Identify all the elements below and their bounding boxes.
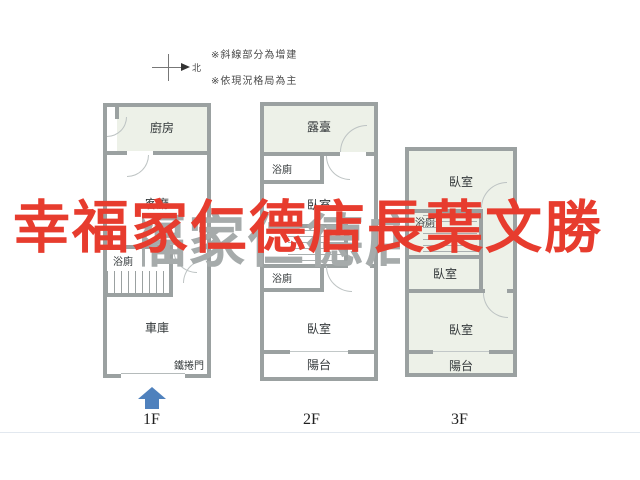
entry-arrow-icon: [138, 387, 166, 409]
floor-plan-image: 北 ※斜線部分為增建 ※依現況格局為主 廚房 客廳 浴廁 車庫 鐵捲門 露臺 浴…: [0, 0, 640, 480]
room-label-bedroom-lower: 臥室: [264, 320, 374, 337]
floor-label-2f: 2F: [303, 411, 320, 429]
sliding-door-line: [290, 351, 348, 352]
room-label-bathroom-lower: 浴廁: [272, 270, 292, 285]
wall-segment: [107, 293, 173, 297]
room-label-bathroom-upper: 浴廁: [272, 161, 292, 176]
room-label-balcony: 陽台: [409, 357, 513, 374]
door-arc: [127, 155, 149, 177]
sliding-door-line: [433, 351, 489, 352]
stairs: [107, 271, 169, 293]
compass-north-label: 北: [192, 61, 201, 74]
room-label-balcony: 陽台: [264, 356, 374, 373]
entry-arrow-head: [138, 387, 166, 399]
floor-plan-3f: 臥室 浴廁 臥室 臥室 陽台: [405, 147, 517, 377]
room-label-bedroom-middle: 臥室: [433, 265, 457, 282]
compass-icon: 北: [150, 50, 205, 86]
compass-arrow-icon: [181, 63, 190, 71]
roller-door-opening: [121, 373, 185, 378]
roller-door-label: 鐵捲門: [174, 357, 204, 372]
watermark-text: 幸福家仁德店長葉文勝: [13, 200, 640, 257]
wall-segment: [264, 180, 324, 184]
door-arc: [326, 156, 350, 180]
wall-segment: [264, 288, 324, 292]
bottom-separator-line: [0, 432, 640, 433]
floor-label-3f: 3F: [451, 411, 468, 429]
wall-segment: [107, 151, 207, 155]
note-hatch-addition: ※斜線部分為增建: [211, 46, 297, 61]
entry-arrow-stem: [145, 399, 159, 409]
wall-segment: [320, 156, 324, 184]
room-label-kitchen: 廚房: [117, 119, 207, 136]
room-label-bedroom-lower: 臥室: [409, 321, 513, 338]
room-label-garage: 車庫: [107, 319, 207, 336]
floor-label-1f: 1F: [143, 411, 160, 429]
note-current-layout: ※依現況格局為主: [211, 72, 297, 87]
compass-axis: [168, 54, 169, 81]
